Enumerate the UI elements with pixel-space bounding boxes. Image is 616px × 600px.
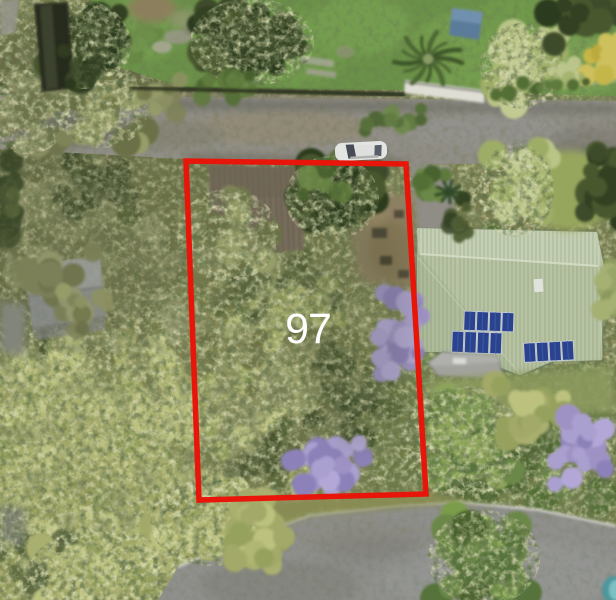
- svg-text:97: 97: [285, 305, 331, 353]
